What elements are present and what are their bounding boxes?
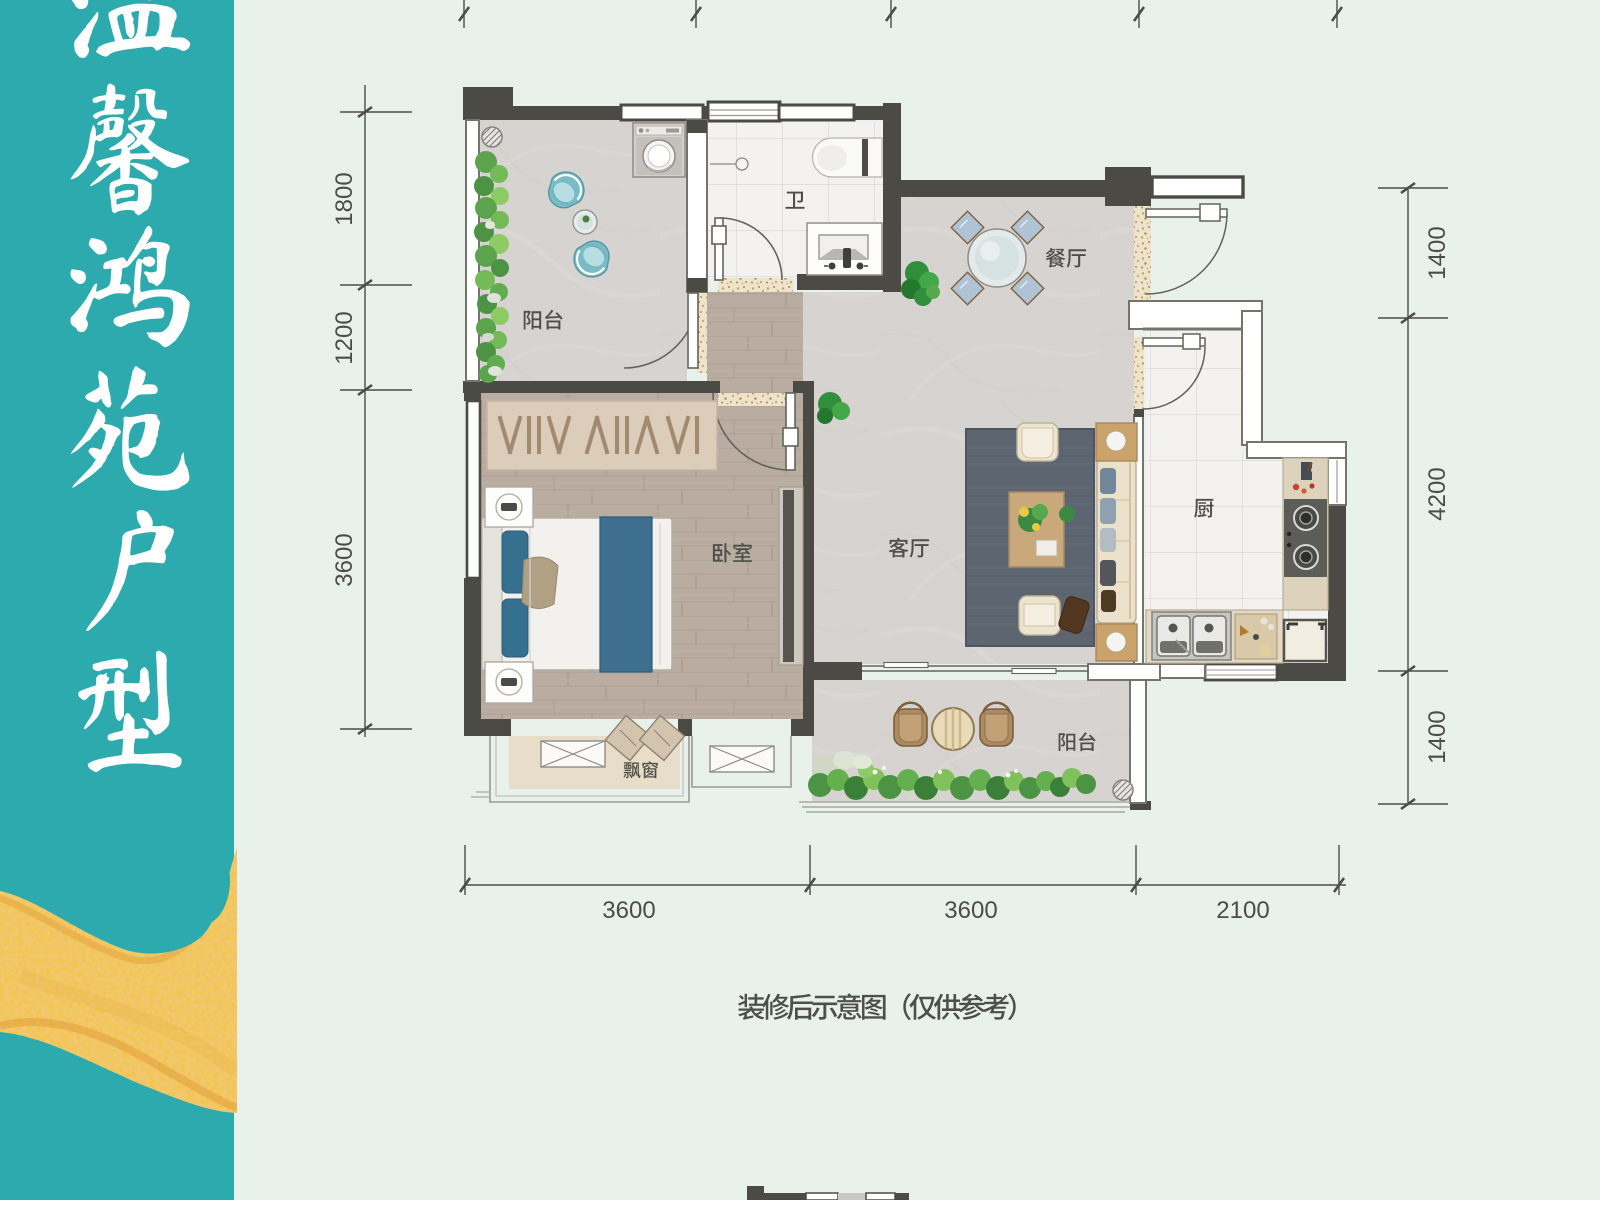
- svg-text:1400: 1400: [1424, 226, 1451, 279]
- svg-text:1400: 1400: [1424, 710, 1451, 763]
- svg-text:3600: 3600: [331, 533, 358, 586]
- svg-text:3600: 3600: [602, 897, 655, 924]
- svg-text:3600: 3600: [944, 897, 997, 924]
- svg-text:2100: 2100: [1216, 897, 1269, 924]
- svg-text:1800: 1800: [331, 172, 358, 225]
- svg-text:4200: 4200: [1424, 467, 1451, 520]
- svg-text:1200: 1200: [331, 311, 358, 364]
